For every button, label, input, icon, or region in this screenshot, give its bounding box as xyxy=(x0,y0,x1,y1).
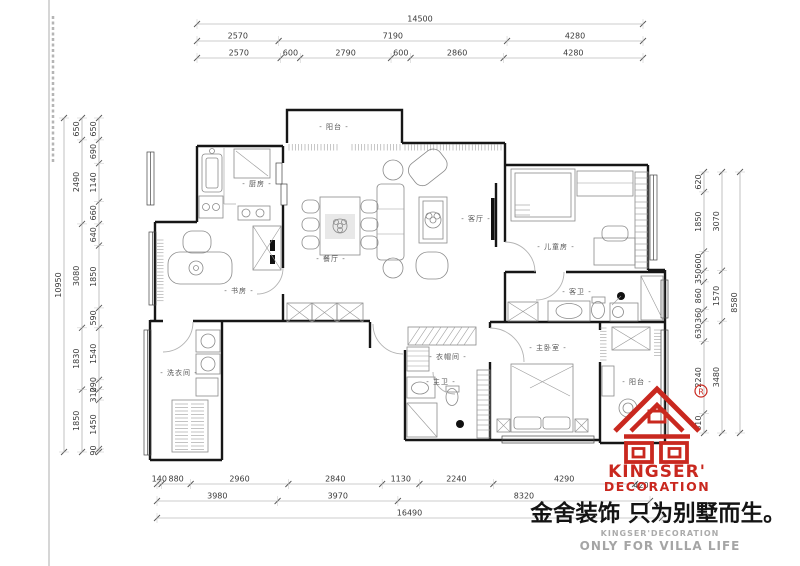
room-label: - 儿童房 - xyxy=(537,242,575,251)
dimension-value: 7190 xyxy=(383,32,403,41)
dimension-value: 14500 xyxy=(407,15,432,24)
dimension-value: 140 xyxy=(152,475,167,484)
registered-mark-icon: R xyxy=(695,385,707,397)
dimension-value: 350 xyxy=(694,269,703,284)
room-label: - 书房 - xyxy=(224,286,254,295)
dimension-value: 660 xyxy=(89,205,98,220)
room-label: - 主卫 - xyxy=(426,377,456,386)
dimension-value: 1830 xyxy=(72,349,81,369)
dimension-value: 90 xyxy=(89,445,98,455)
furniture xyxy=(168,145,663,452)
dimension-value: 10950 xyxy=(54,272,63,297)
dimension-value: 1450 xyxy=(89,414,98,434)
room-label: - 阳台 - xyxy=(319,122,349,131)
dimension-value: 1540 xyxy=(89,344,98,364)
dimension-value: 600 xyxy=(694,253,703,268)
room-label: - 客卫 - xyxy=(562,287,592,296)
dimension-value: 2790 xyxy=(335,49,355,58)
dimension-value: 620 xyxy=(694,174,703,189)
dimension-value: 650 xyxy=(89,121,98,136)
dimension-value: 2860 xyxy=(447,49,467,58)
room-label: - 厨房 - xyxy=(242,179,272,188)
dimension-value: 1130 xyxy=(391,475,411,484)
dimension-value: 1850 xyxy=(89,267,98,287)
dimension-value: 690 xyxy=(89,144,98,159)
dimension-value: 650 xyxy=(72,121,81,136)
brand-sub-en: KINGSER'DECORATION xyxy=(601,529,720,538)
dimension-value: 4280 xyxy=(565,32,585,41)
dimension-value: 2570 xyxy=(228,32,248,41)
dimension-value: 8580 xyxy=(730,292,739,312)
room-label: - 客厅 - xyxy=(461,214,491,223)
dimension-value: 3070 xyxy=(712,211,721,231)
dimension-value: 1850 xyxy=(694,211,703,231)
brand-subname: DECORATION xyxy=(604,479,710,494)
floor-plan-page: 1450025707190428025706002790600286042801… xyxy=(0,0,800,566)
dimension-value: 360 xyxy=(694,308,703,323)
room-label: - 主卧室 - xyxy=(529,343,567,352)
dimension-value: 8320 xyxy=(514,492,534,501)
kingser-logo: 420 R KINGSER' DECORATION 金舍装饰 只为别墅而生。 K… xyxy=(529,385,785,553)
room-label: - 阳台 - xyxy=(622,377,652,386)
dimension-value: 590 xyxy=(89,310,98,325)
dimension-value: 2490 xyxy=(72,172,81,192)
dimension-value: 1140 xyxy=(89,172,98,192)
dimension-value: 860 xyxy=(694,288,703,303)
dimension-value: 3480 xyxy=(712,367,721,387)
dimension-value: 1570 xyxy=(712,286,721,306)
dimension-value: 3970 xyxy=(328,492,348,501)
room-label: - 衣帽间 - xyxy=(429,352,467,361)
walls xyxy=(150,110,665,460)
dimension-value: 3980 xyxy=(207,492,227,501)
dimension-value: 1850 xyxy=(72,411,81,431)
dimension-value: 2840 xyxy=(325,475,345,484)
dimension-value: 630 xyxy=(694,324,703,339)
dimension-value: 2240 xyxy=(446,475,466,484)
dimension-value: 2960 xyxy=(229,475,249,484)
dimension-value: 4280 xyxy=(563,49,583,58)
dimension-value: 310 xyxy=(89,387,98,402)
floor-plan-canvas: 1450025707190428025706002790600286042801… xyxy=(0,0,800,566)
dimension-value: 4290 xyxy=(554,475,574,484)
dimension-value: 640 xyxy=(89,227,98,242)
room-label: - 餐厅 - xyxy=(316,254,346,263)
dimension-value: 16490 xyxy=(397,509,422,518)
dimension-value: 3080 xyxy=(72,266,81,286)
drawing-frame xyxy=(49,0,53,566)
dimension-value: 2570 xyxy=(229,49,249,58)
kingser-house-icon xyxy=(615,389,699,462)
dimension-value: 600 xyxy=(283,49,298,58)
room-label: - 洗衣间 - xyxy=(160,368,198,377)
registered-letter: R xyxy=(698,388,704,397)
brand-slogan: 金舍装饰 只为别墅而生。 xyxy=(529,500,785,527)
brand-tagline-en: ONLY FOR VILLA LIFE xyxy=(580,539,741,553)
dimension-value: 600 xyxy=(393,49,408,58)
dimension-value: 880 xyxy=(169,475,184,484)
